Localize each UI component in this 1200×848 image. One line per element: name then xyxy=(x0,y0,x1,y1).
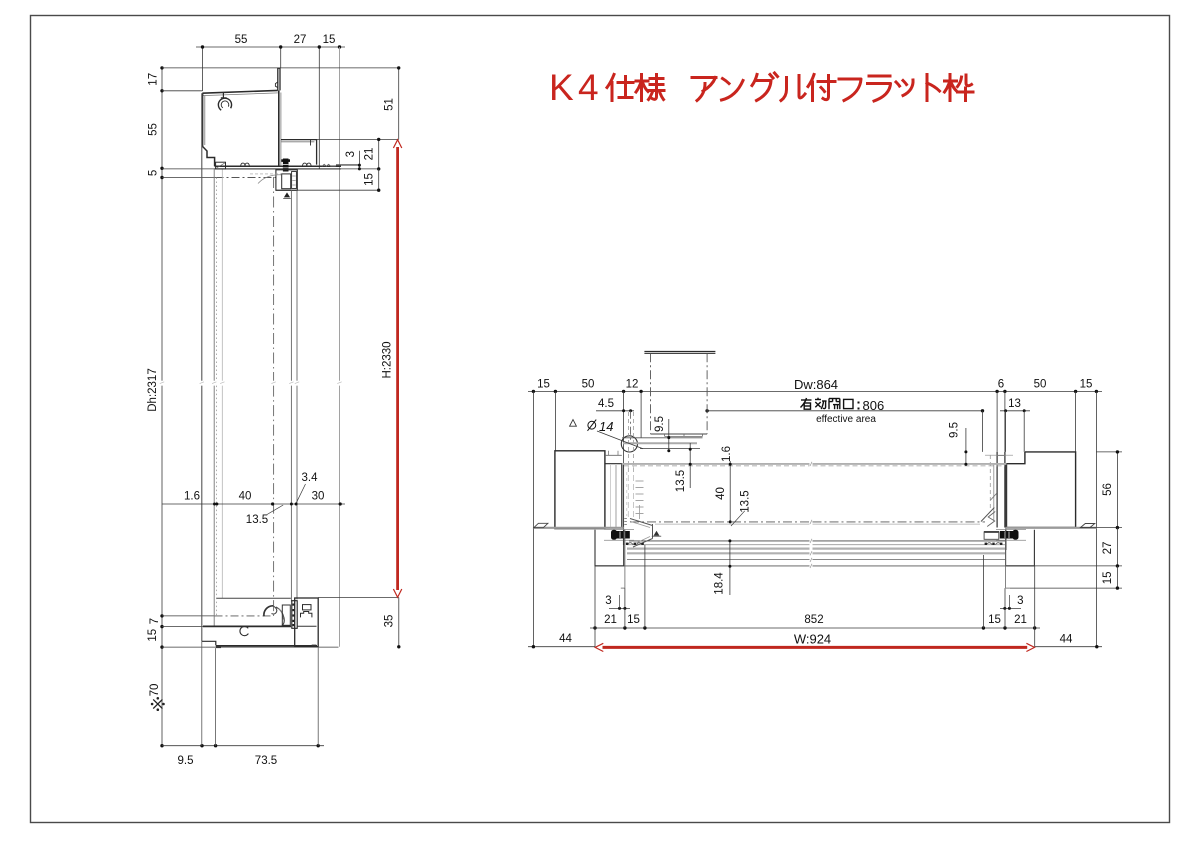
svg-text:13: 13 xyxy=(1008,398,1021,410)
svg-text:5: 5 xyxy=(148,170,160,176)
svg-text:15: 15 xyxy=(537,379,550,391)
svg-text:14: 14 xyxy=(599,419,613,434)
svg-text:4: 4 xyxy=(578,67,599,108)
svg-text:Dw:864: Dw:864 xyxy=(794,377,838,392)
svg-text:55: 55 xyxy=(148,123,160,136)
svg-text:K: K xyxy=(549,67,574,108)
svg-text:55: 55 xyxy=(235,34,248,46)
svg-text:7: 7 xyxy=(149,618,161,624)
svg-text:51: 51 xyxy=(384,98,396,111)
svg-text:4.5: 4.5 xyxy=(598,398,614,410)
svg-text:effective area: effective area xyxy=(816,414,876,425)
svg-text:Dh:2317: Dh:2317 xyxy=(147,368,159,411)
svg-text:30: 30 xyxy=(312,491,325,503)
svg-text:12: 12 xyxy=(626,379,639,391)
svg-text:1.6: 1.6 xyxy=(184,491,200,503)
svg-text:21: 21 xyxy=(364,148,376,161)
svg-text:9.5: 9.5 xyxy=(949,422,961,438)
svg-text:40: 40 xyxy=(715,487,727,500)
svg-text:H:2330: H:2330 xyxy=(382,341,394,378)
svg-text:44: 44 xyxy=(1060,634,1073,646)
svg-text:50: 50 xyxy=(1034,379,1047,391)
svg-text:3: 3 xyxy=(345,151,357,157)
svg-text:21: 21 xyxy=(604,614,617,626)
svg-text:852: 852 xyxy=(804,614,823,626)
svg-text:27: 27 xyxy=(294,34,307,46)
svg-text:15: 15 xyxy=(147,629,159,642)
svg-text:15: 15 xyxy=(627,614,640,626)
svg-text:17: 17 xyxy=(148,73,160,86)
svg-text:73.5: 73.5 xyxy=(255,755,277,767)
svg-text:18.4: 18.4 xyxy=(713,572,725,595)
svg-text:21: 21 xyxy=(1014,614,1027,626)
svg-text:W:924: W:924 xyxy=(794,632,831,647)
svg-text:44: 44 xyxy=(559,633,572,645)
svg-text:56: 56 xyxy=(1102,483,1114,496)
svg-text:70: 70 xyxy=(149,684,161,697)
svg-text:13.5: 13.5 xyxy=(675,470,687,492)
svg-text:35: 35 xyxy=(383,615,395,628)
svg-text:13.5: 13.5 xyxy=(740,490,752,512)
svg-text:15: 15 xyxy=(364,173,376,186)
svg-text:3: 3 xyxy=(605,595,611,607)
svg-text:9.5: 9.5 xyxy=(654,416,666,432)
svg-text:1.6: 1.6 xyxy=(721,446,733,462)
svg-text:40: 40 xyxy=(239,491,252,503)
svg-text:3.4: 3.4 xyxy=(302,472,319,484)
svg-text:13.5: 13.5 xyxy=(246,514,268,526)
svg-text:9.5: 9.5 xyxy=(178,755,194,767)
svg-text:3: 3 xyxy=(1017,595,1023,607)
svg-text:27: 27 xyxy=(1102,542,1114,555)
svg-text:6: 6 xyxy=(998,379,1004,391)
svg-text:15: 15 xyxy=(1102,571,1114,584)
svg-text:15: 15 xyxy=(323,34,336,46)
svg-text:806: 806 xyxy=(863,398,885,413)
svg-text:15: 15 xyxy=(1080,379,1093,391)
svg-text:50: 50 xyxy=(582,379,595,391)
svg-text:15: 15 xyxy=(988,614,1001,626)
